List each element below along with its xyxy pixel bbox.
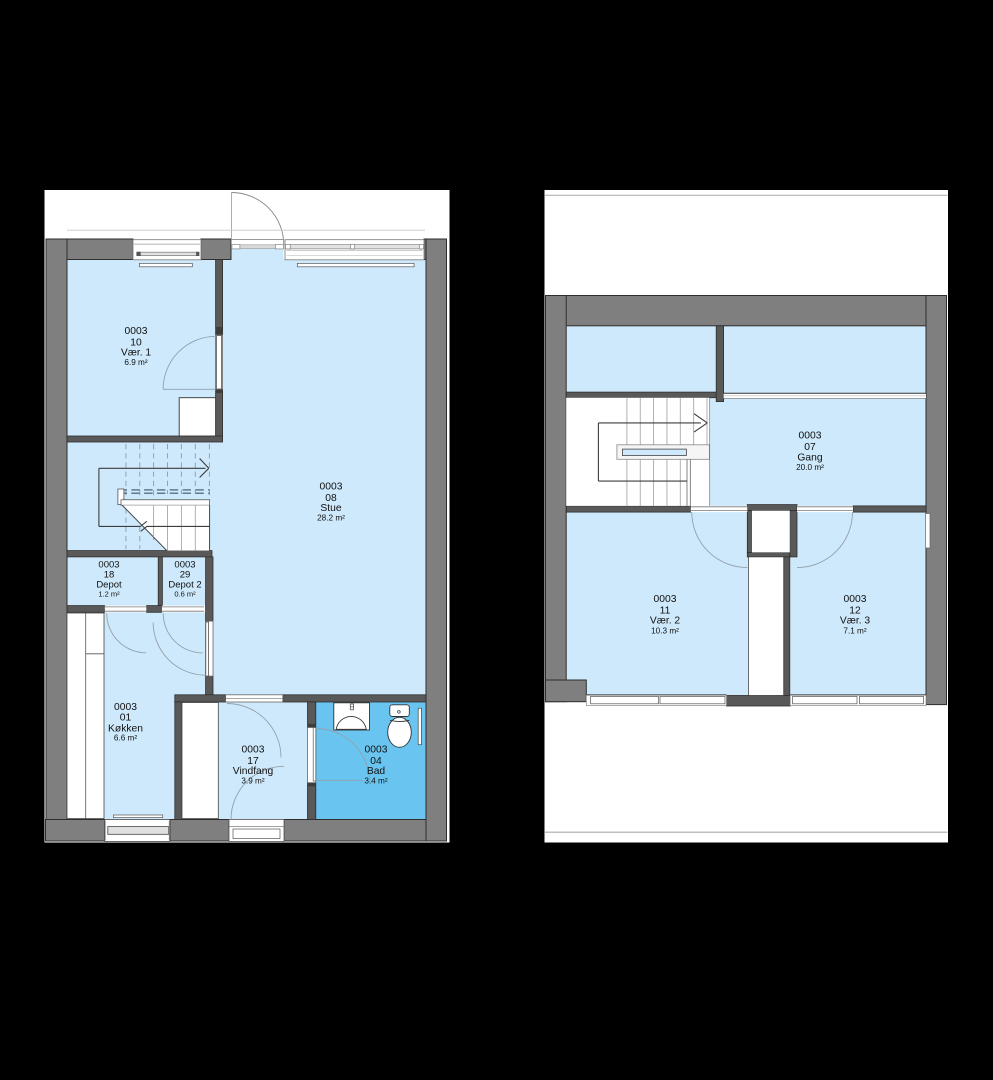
svg-text:Gang: Gang bbox=[797, 452, 822, 463]
svg-text:6.9 m²: 6.9 m² bbox=[124, 358, 147, 367]
svg-text:Vær. 2: Vær. 2 bbox=[650, 616, 681, 627]
svg-text:0003: 0003 bbox=[114, 702, 137, 713]
svg-text:0.6 m²: 0.6 m² bbox=[174, 590, 196, 599]
svg-text:0003: 0003 bbox=[125, 326, 148, 337]
svg-text:6.6 m²: 6.6 m² bbox=[114, 734, 137, 743]
svg-text:0003: 0003 bbox=[654, 594, 677, 605]
svg-text:Vær. 3: Vær. 3 bbox=[840, 616, 871, 627]
svg-text:1.2 m²: 1.2 m² bbox=[98, 590, 120, 599]
svg-text:Vær. 1: Vær. 1 bbox=[121, 347, 152, 358]
svg-text:10.3 m²: 10.3 m² bbox=[651, 626, 679, 635]
svg-text:28.2 m²: 28.2 m² bbox=[317, 514, 345, 523]
svg-text:07: 07 bbox=[804, 442, 816, 453]
svg-text:Vindfang: Vindfang bbox=[233, 766, 274, 777]
svg-text:0003: 0003 bbox=[365, 744, 388, 755]
svg-text:0003: 0003 bbox=[320, 482, 343, 493]
svg-text:3.9 m²: 3.9 m² bbox=[241, 777, 264, 786]
svg-text:7.1 m²: 7.1 m² bbox=[843, 626, 866, 635]
svg-text:20.0 m²: 20.0 m² bbox=[796, 463, 824, 472]
svg-text:Stue: Stue bbox=[320, 503, 341, 514]
svg-text:0003: 0003 bbox=[844, 594, 867, 605]
svg-text:01: 01 bbox=[120, 713, 132, 724]
svg-text:3.4 m²: 3.4 m² bbox=[364, 777, 387, 786]
svg-text:0003: 0003 bbox=[242, 744, 265, 755]
svg-text:0003: 0003 bbox=[799, 431, 822, 442]
svg-text:Bad: Bad bbox=[367, 766, 386, 777]
